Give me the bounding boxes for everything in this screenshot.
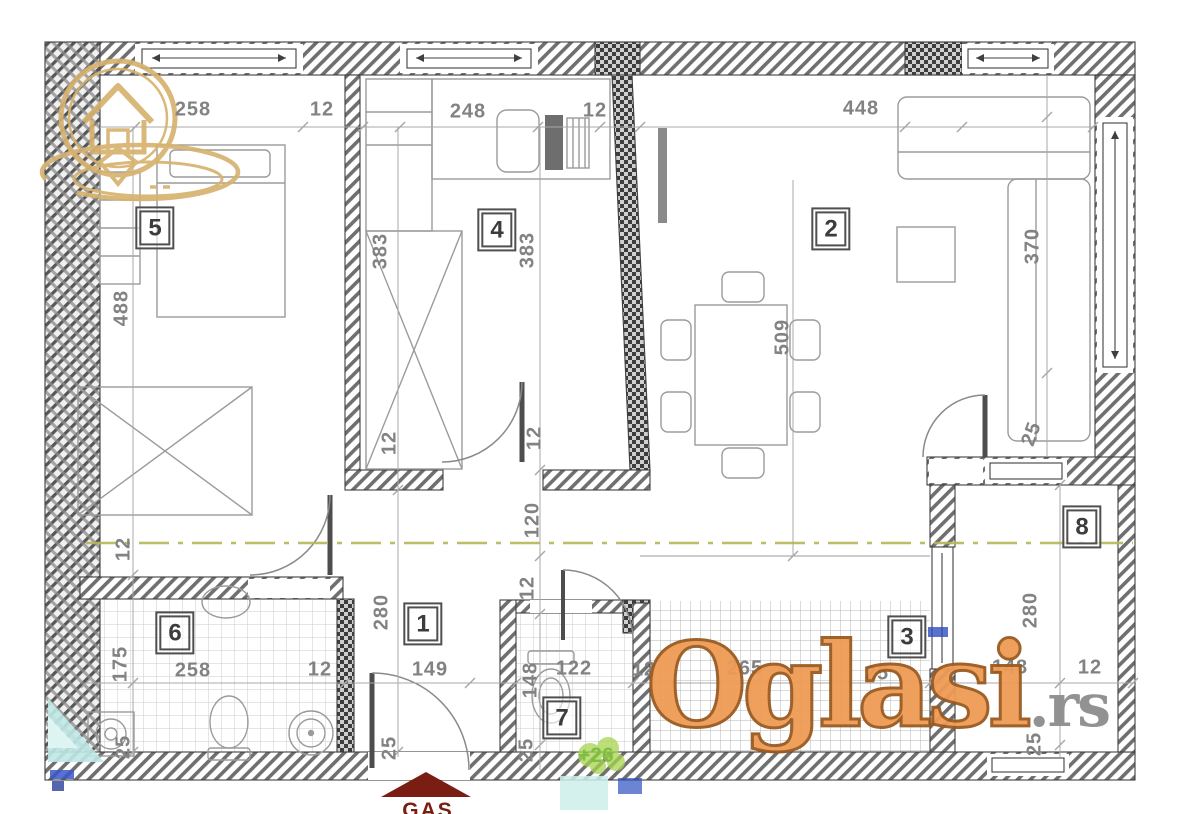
door-balcony bbox=[923, 395, 985, 457]
dimension-label: 383 bbox=[370, 233, 393, 269]
dimension-label: 120 bbox=[522, 502, 545, 538]
dimension-label: 25 bbox=[516, 738, 539, 762]
wardrobe bbox=[78, 387, 252, 515]
dimension-label: 258 bbox=[175, 660, 211, 683]
dimension-label: 383 bbox=[517, 232, 540, 268]
dimension-label: 25 bbox=[379, 736, 402, 760]
window-top-middle bbox=[400, 44, 538, 73]
window-terrace-divider bbox=[932, 547, 953, 669]
dimension-label: 12 bbox=[113, 537, 136, 561]
dimension-label: 258 bbox=[175, 99, 211, 122]
dimension-label: 248 bbox=[450, 101, 486, 124]
room-number-label: 2 bbox=[811, 207, 850, 250]
dimension-label: 12 bbox=[517, 576, 540, 600]
room-number-label: 8 bbox=[1062, 505, 1101, 548]
dimension-label: 509 bbox=[772, 319, 795, 355]
dimension-label: 12 bbox=[308, 659, 332, 682]
door-bedroom5 bbox=[250, 495, 330, 575]
dining-table bbox=[661, 272, 820, 478]
dimension-label: 12 bbox=[1078, 657, 1102, 680]
dimension-label: 370 bbox=[1022, 228, 1045, 264]
floorplan-page: { "watermark": { "brand": "Oglasi", "tld… bbox=[0, 0, 1200, 814]
room-number-label: 7 bbox=[542, 696, 581, 739]
dimension-label: 488 bbox=[111, 290, 134, 326]
dimension-label: 175 bbox=[110, 646, 133, 682]
kitchen-sink bbox=[497, 110, 589, 172]
room-number-label: 6 bbox=[155, 611, 194, 654]
sofa bbox=[898, 97, 1090, 441]
entrance-text: GAS bbox=[393, 799, 463, 814]
level-annotation: +26 bbox=[578, 744, 614, 768]
dimension-label: 12 bbox=[310, 99, 334, 122]
dimension-label: 25 bbox=[1024, 732, 1047, 756]
dimension-label: 12 bbox=[379, 431, 402, 455]
room-number-label: 1 bbox=[403, 602, 442, 645]
dimension-label: 25 bbox=[113, 735, 136, 759]
dimension-label: 280 bbox=[1020, 592, 1043, 628]
dimension-label: 12 bbox=[524, 426, 547, 450]
dimension-label: 12 bbox=[583, 100, 607, 123]
dimension-label: 149 bbox=[412, 659, 448, 682]
window-right bbox=[1097, 117, 1133, 373]
tv-unit bbox=[658, 128, 667, 223]
bed bbox=[157, 145, 285, 317]
coffee-table bbox=[897, 227, 955, 282]
room-number-label: 4 bbox=[477, 208, 516, 251]
dimension-label: 25 bbox=[865, 663, 889, 686]
window-bottom-right bbox=[987, 754, 1069, 776]
dimension-label: 265 bbox=[727, 658, 763, 681]
room-number-label: 3 bbox=[887, 615, 926, 658]
dimension-label: 148 bbox=[992, 657, 1028, 680]
window-balcony-top bbox=[985, 459, 1067, 483]
window-top-left bbox=[135, 44, 303, 73]
dimension-label: 122 bbox=[556, 658, 592, 681]
dimension-label: 448 bbox=[843, 98, 879, 121]
dimension-label: 280 bbox=[371, 594, 394, 630]
dimension-label: 148 bbox=[520, 662, 543, 698]
dimension-label: 12 bbox=[632, 659, 656, 682]
window-top-right bbox=[962, 44, 1054, 73]
room-number-label: 5 bbox=[135, 206, 174, 249]
bedroom-cabinet bbox=[100, 172, 140, 284]
